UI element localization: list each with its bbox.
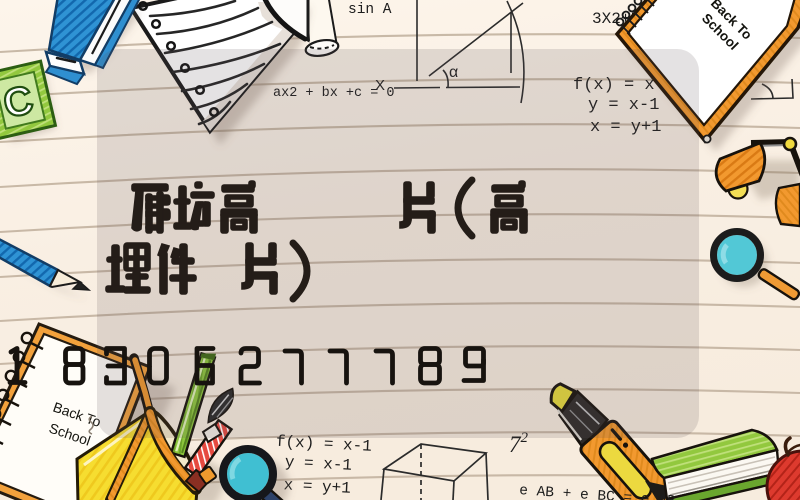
svg-text:sin A: sin A [348,2,392,18]
svg-text:y = x-1: y = x-1 [284,453,352,474]
svg-text:x = y+1: x = y+1 [283,476,351,497]
